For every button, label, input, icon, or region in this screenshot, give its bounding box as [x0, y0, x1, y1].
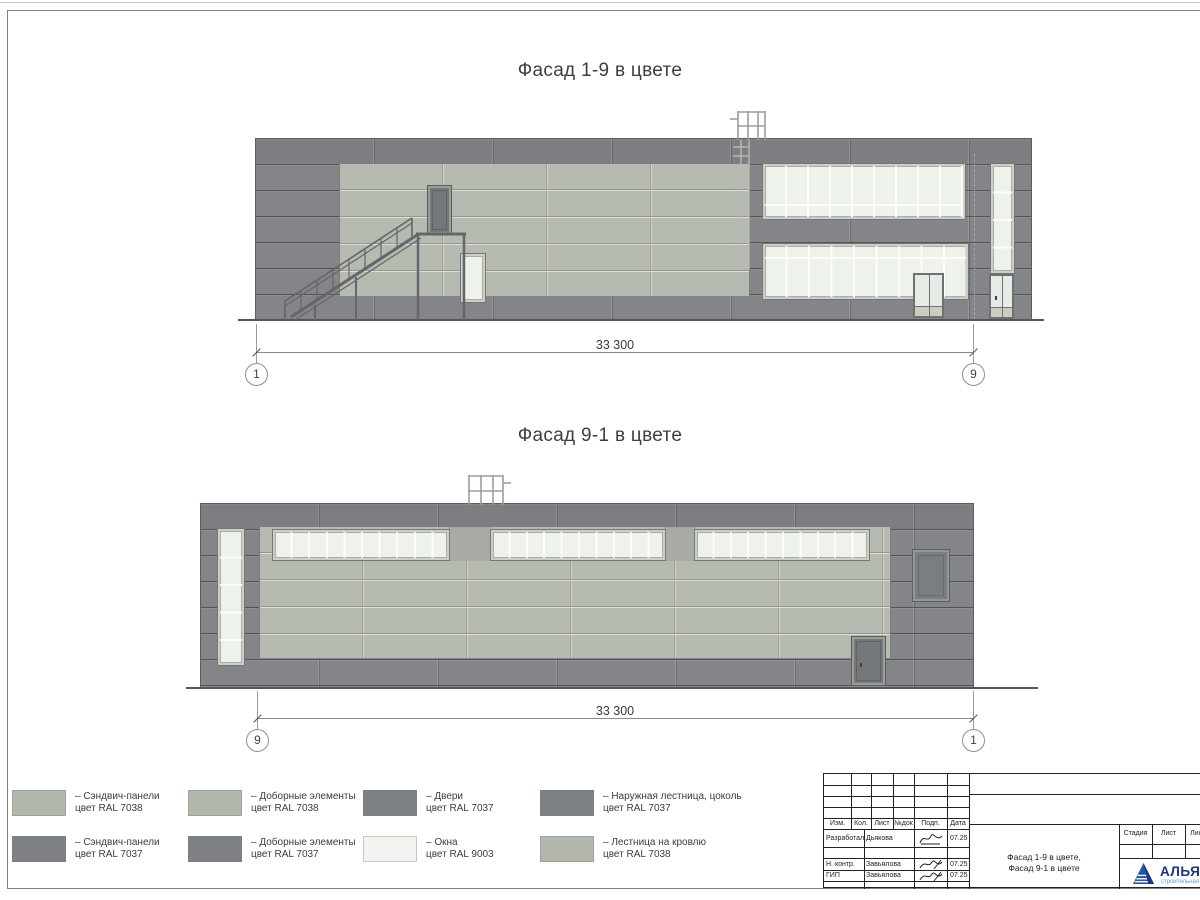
rear-door: [852, 637, 885, 685]
window-band-3: [695, 530, 869, 560]
signature: [918, 832, 944, 845]
row-role: Разработал: [826, 835, 864, 842]
glazing-transom: [765, 257, 966, 259]
rev-header-izm: Изм.: [824, 820, 851, 827]
row-date: 07.25: [950, 872, 968, 879]
legend-item: – Доборные элементыцвет RAL 7037: [188, 836, 363, 882]
color-swatch: [363, 836, 417, 862]
document-title: Фасад 1-9 в цвете, Фасад 9-1 в цвете: [970, 852, 1118, 874]
color-swatch: [540, 790, 594, 816]
company-logo-text: АЛЬЯНС: [1160, 864, 1200, 879]
color-swatch: [12, 836, 66, 862]
row-role: Н. контр.: [826, 861, 855, 868]
roof-ladder-icon: [465, 473, 513, 506]
row-date: 07.25: [950, 861, 968, 868]
axis-bubble-9: 9: [962, 363, 985, 386]
upper-glazing-band: [763, 164, 965, 219]
row-name: Завьялова: [866, 861, 901, 868]
signature: [918, 859, 944, 870]
color-swatch: [363, 790, 417, 816]
dimension-value: 33 300: [515, 338, 715, 352]
sheet-header: Лист: [1152, 830, 1185, 837]
axis-bubble-9: 9: [246, 729, 269, 752]
legend: – Сэндвич-панелицвет RAL 7038 – Доборные…: [12, 790, 870, 882]
stage-header: Стадия: [1119, 830, 1152, 837]
external-staircase: [281, 189, 466, 322]
sheets-header: Листов: [1185, 830, 1200, 837]
stair-window-strip: [218, 529, 244, 665]
axis-bubble-1: 1: [245, 363, 268, 386]
signature: [918, 871, 944, 882]
color-swatch: [540, 836, 594, 862]
facade-1-9-title: Фасад 1-9 в цвете: [0, 60, 1200, 82]
rev-header-podp: Подп.: [914, 820, 947, 827]
legend-item: – Доборные элементыцвет RAL 7038: [188, 790, 363, 836]
legend-item: – Сэндвич-панелицвет RAL 7038: [12, 790, 188, 836]
row-name: Дьякова: [866, 835, 893, 842]
facade-9-1-title: Фасад 9-1 в цвете: [0, 425, 1200, 447]
roof-ladder-icon: [724, 109, 766, 274]
facade-1-9-drawing: [255, 138, 1032, 321]
side-entrance-door: [989, 274, 1014, 319]
row-role: ГИП: [826, 872, 840, 879]
parapet-band: [256, 139, 1031, 165]
dimension-value: 33 300: [515, 704, 715, 718]
recessed-panel: [913, 550, 949, 601]
color-swatch: [188, 836, 242, 862]
rev-header-data: Дата: [947, 820, 969, 827]
legend-item: – Лестница на кровлюцвет RAL 7038: [540, 836, 870, 882]
rev-header-kol: Кол.: [851, 820, 871, 827]
legend-item: – Окнацвет RAL 9003: [363, 836, 540, 882]
axis-bubble-1: 1: [962, 729, 985, 752]
stair-window-strip: [991, 164, 1014, 273]
legend-item: – Сэндвич-панелицвет RAL 7037: [12, 836, 188, 882]
color-swatch: [188, 790, 242, 816]
spacer-panel: [448, 527, 492, 561]
window-band-1: [273, 530, 449, 560]
spacer-panel: [664, 527, 696, 561]
drawing-sheet: { "facade1": { "title": "Фасад 1-9 в цве…: [0, 0, 1200, 900]
legend-item: – Наружная лестница, цокольцвет RAL 7037: [540, 790, 870, 836]
row-date: 07.25: [950, 835, 968, 842]
title-block: Изм. Кол. Лист №док Подп. Дата Разработа…: [823, 773, 1200, 888]
rev-header-list: Лист: [871, 820, 893, 827]
axis-line: [974, 154, 975, 320]
company-logo-subtitle: строительная компания: [1161, 879, 1200, 885]
ground-line: [186, 687, 1038, 689]
entrance-door: [913, 273, 944, 318]
sheet-outer-edge: [0, 2, 1200, 3]
facade-9-1-drawing: [200, 503, 974, 688]
company-logo-icon: [1132, 862, 1155, 885]
legend-item: – Дверицвет RAL 7037: [363, 790, 540, 836]
glazing-transom: [765, 204, 963, 206]
rev-header-ndok: №док: [893, 820, 914, 827]
door-handle: [860, 663, 862, 667]
door-handle: [995, 296, 997, 300]
color-swatch: [12, 790, 66, 816]
row-name: Завьялова: [866, 872, 901, 879]
window-band-2: [491, 530, 665, 560]
